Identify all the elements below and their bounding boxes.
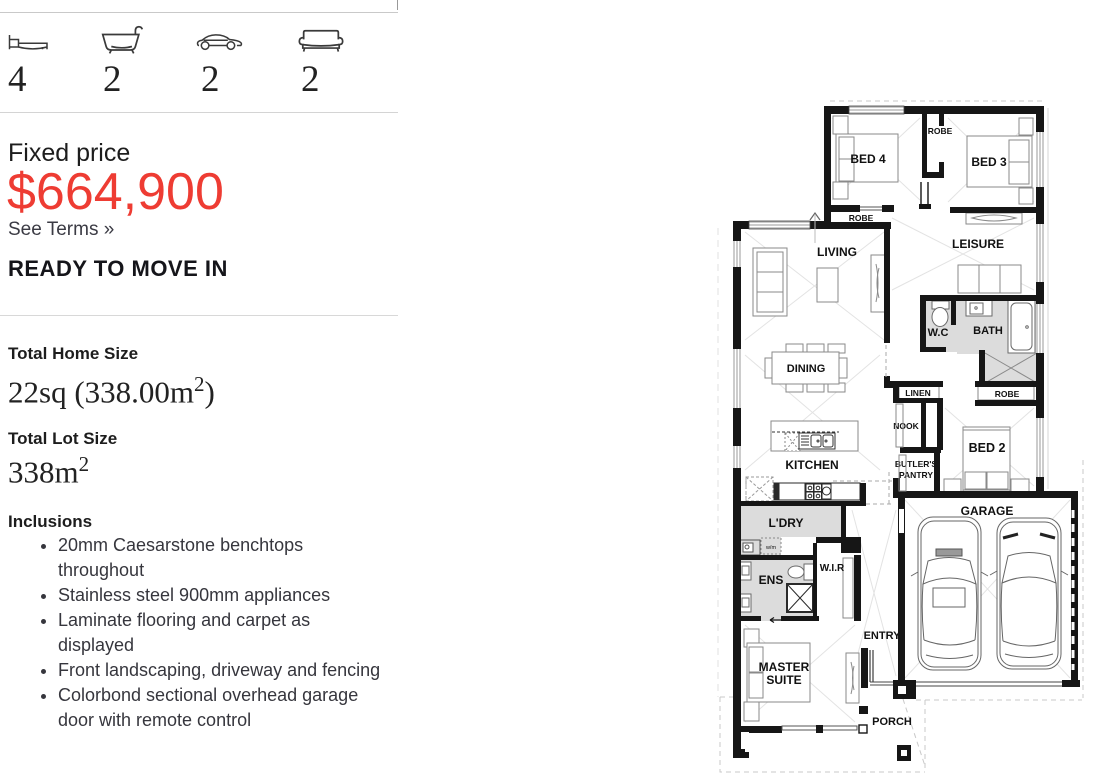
svg-text:ROBE: ROBE	[849, 213, 874, 223]
svg-text:w/m: w/m	[765, 545, 777, 551]
svg-text:BED 3: BED 3	[971, 155, 1007, 169]
svg-text:NOOK: NOOK	[893, 421, 919, 431]
svg-text:BED 4: BED 4	[850, 152, 886, 166]
svg-text:ENTRY: ENTRY	[864, 630, 902, 642]
svg-text:BATH: BATH	[973, 325, 1003, 337]
svg-text:W.I.R: W.I.R	[820, 563, 845, 574]
svg-text:MASTER: MASTER	[759, 660, 810, 674]
svg-text:L'DRY: L'DRY	[768, 516, 803, 530]
svg-text:BUTLER'S: BUTLER'S	[895, 459, 937, 469]
svg-text:ENS: ENS	[759, 573, 784, 587]
svg-text:W.C: W.C	[928, 327, 949, 339]
svg-text:KITCHEN: KITCHEN	[785, 458, 838, 472]
svg-text:BED 2: BED 2	[969, 441, 1006, 455]
svg-text:SUITE: SUITE	[766, 673, 801, 687]
svg-text:ROBE: ROBE	[928, 126, 953, 136]
svg-text:DINING: DINING	[787, 363, 826, 375]
svg-text:PANTRY: PANTRY	[899, 470, 933, 480]
svg-text:LINEN: LINEN	[905, 388, 931, 398]
svg-text:GARAGE: GARAGE	[961, 504, 1014, 518]
svg-text:ROBE: ROBE	[995, 389, 1020, 399]
svg-text:LIVING: LIVING	[817, 245, 857, 259]
svg-text:LEISURE: LEISURE	[952, 237, 1004, 251]
svg-text:PORCH: PORCH	[872, 716, 912, 728]
